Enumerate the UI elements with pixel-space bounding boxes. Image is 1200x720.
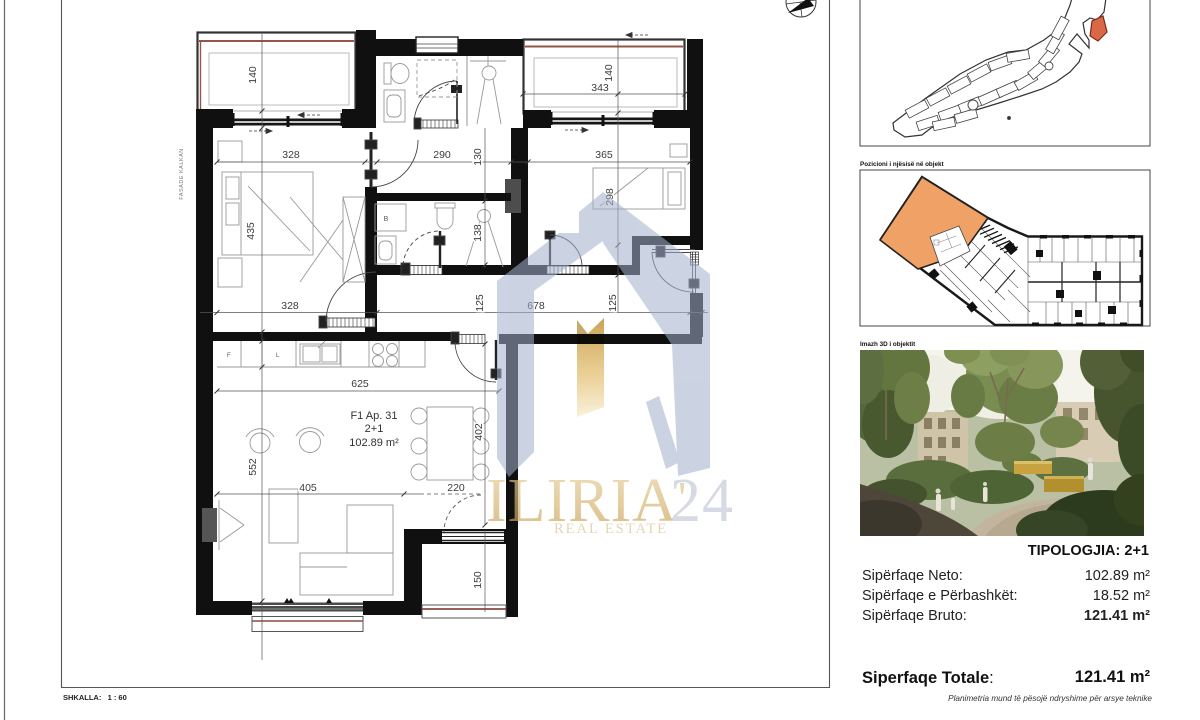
svg-text:125: 125 bbox=[474, 294, 486, 312]
svg-text:140: 140 bbox=[603, 64, 615, 82]
svg-text:343: 343 bbox=[591, 82, 609, 94]
svg-text:F: F bbox=[227, 353, 231, 359]
svg-text:121.41 m²: 121.41 m² bbox=[1084, 608, 1150, 624]
svg-text:FASADE KALKAN: FASADE KALKAN bbox=[179, 148, 185, 199]
svg-text:B: B bbox=[384, 216, 389, 223]
svg-text:18.52 m²: 18.52 m² bbox=[1093, 588, 1150, 604]
svg-text:102.89 m²: 102.89 m² bbox=[1085, 568, 1150, 584]
svg-text:405: 405 bbox=[299, 482, 317, 494]
svg-text:328: 328 bbox=[281, 300, 299, 312]
svg-text:F1 Ap. 31: F1 Ap. 31 bbox=[350, 410, 397, 422]
svg-text:140: 140 bbox=[247, 66, 259, 84]
svg-text:121.41 m²: 121.41 m² bbox=[1075, 668, 1151, 686]
svg-text:402: 402 bbox=[473, 423, 485, 441]
svg-text:125: 125 bbox=[607, 294, 619, 312]
svg-text:Imazh 3D i objektit: Imazh 3D i objektit bbox=[860, 341, 916, 348]
svg-text:130: 130 bbox=[472, 148, 484, 166]
svg-text:Sipërfaqe Neto:: Sipërfaqe Neto: bbox=[862, 568, 963, 584]
svg-text:552: 552 bbox=[247, 458, 259, 476]
svg-text:102.89 m²: 102.89 m² bbox=[349, 437, 399, 449]
svg-text:TIPOLOGJIA: 2+1: TIPOLOGJIA: 2+1 bbox=[1028, 543, 1149, 559]
svg-text:2+1: 2+1 bbox=[365, 423, 384, 435]
svg-text:Pozicioni i njësisë në objekt: Pozicioni i njësisë në objekt bbox=[860, 161, 945, 168]
svg-text:24: 24 bbox=[670, 467, 734, 535]
svg-text:138: 138 bbox=[472, 224, 484, 242]
svg-text:365: 365 bbox=[595, 149, 613, 161]
svg-text:REAL ESTATE: REAL ESTATE bbox=[554, 521, 668, 537]
svg-text:SHKALLA: 1 : 60: SHKALLA: 1 : 60 bbox=[63, 693, 127, 702]
svg-text:Sipërfaqe Bruto:: Sipërfaqe Bruto: bbox=[862, 608, 967, 624]
svg-text:150: 150 bbox=[472, 571, 484, 589]
svg-text:Siperfaqe Totale:: Siperfaqe Totale: bbox=[862, 669, 994, 687]
svg-text:328: 328 bbox=[282, 149, 300, 161]
svg-text:220: 220 bbox=[447, 482, 465, 494]
svg-text:Planimetria mund të pësojë ndr: Planimetria mund të pësojë ndryshime për… bbox=[948, 694, 1152, 703]
svg-text:290: 290 bbox=[433, 149, 451, 161]
svg-text:Sipërfaqe e Përbashkët:: Sipërfaqe e Përbashkët: bbox=[862, 588, 1018, 604]
svg-text:435: 435 bbox=[245, 222, 257, 240]
svg-text:625: 625 bbox=[351, 378, 369, 390]
